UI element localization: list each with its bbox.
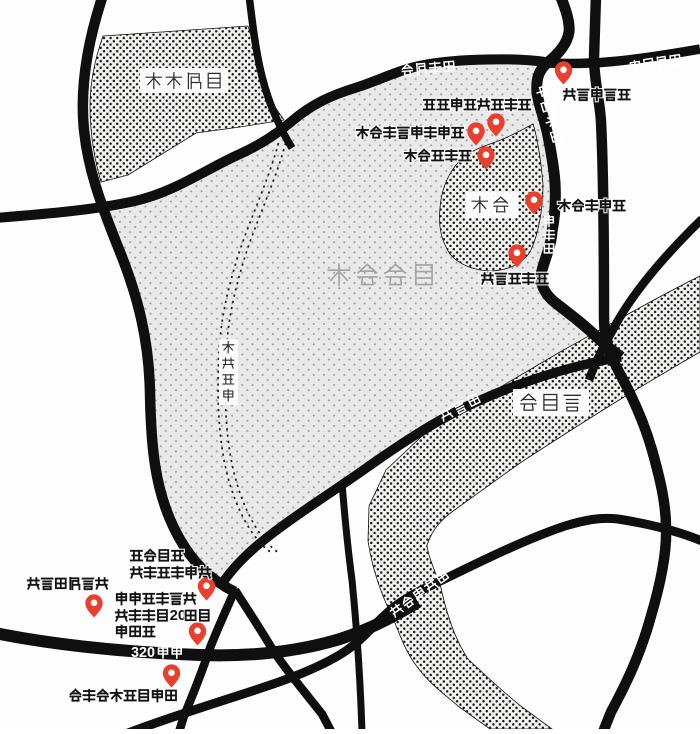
svg-text:320: 320 [131, 645, 155, 661]
